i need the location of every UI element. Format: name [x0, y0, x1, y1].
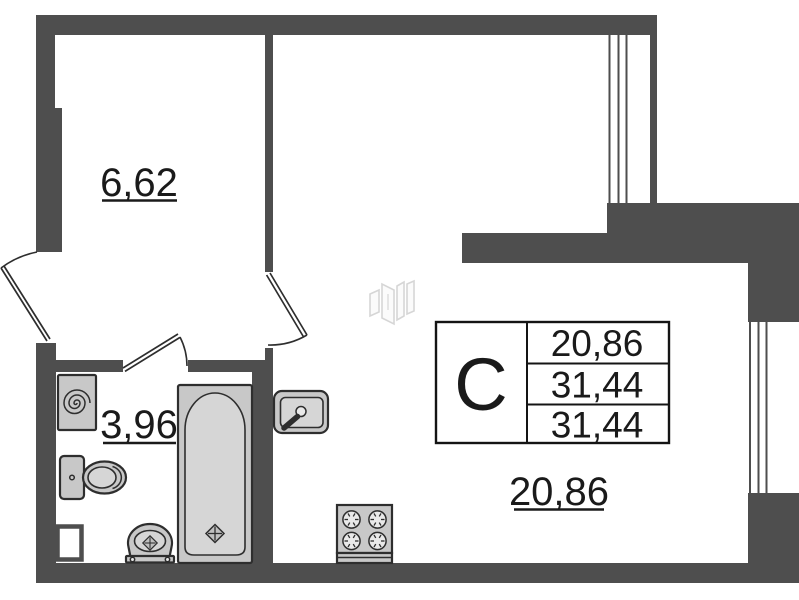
stamp-value-row1: 20,86 [551, 323, 644, 364]
vent-shaft [58, 527, 82, 560]
stove-icon [337, 505, 392, 563]
wall-mid-vertical [265, 35, 273, 272]
wall-bath-top-left [36, 360, 123, 372]
door-living-icon [267, 273, 307, 345]
stamp-value-row2: 31,44 [551, 365, 644, 406]
washing-machine-icon [58, 375, 96, 430]
wall-left-lower [36, 108, 62, 252]
room-label-living: 20,86 [509, 470, 609, 514]
bathtub-icon [178, 385, 252, 563]
floor-plan: 6,62 3,96 20,86 С 20,86 31,44 31,44 [0, 0, 799, 600]
wall-right-upper [748, 263, 799, 322]
wall-nook-partition [462, 233, 607, 263]
watermark-logo-icon [370, 281, 414, 324]
wall-bath-right [252, 360, 273, 563]
wall-stub-living-door [265, 348, 273, 372]
burner-icon [343, 532, 360, 549]
window-top-icon [610, 35, 658, 203]
walls [36, 15, 799, 583]
wall-top [36, 15, 657, 35]
room-label-bathroom: 3,96 [100, 403, 178, 447]
toilet-icon [60, 456, 126, 499]
room-label-hallway: 6,62 [100, 161, 178, 205]
floor-plan-canvas: 6,62 3,96 20,86 С 20,86 31,44 31,44 [0, 0, 799, 600]
wall-bath-left [36, 343, 56, 563]
stamp-table: С 20,86 31,44 31,44 [436, 322, 669, 446]
wall-bottom [36, 563, 799, 583]
burner-icon [369, 511, 386, 528]
stamp-type-letter: С [454, 343, 507, 426]
window-right-icon [750, 322, 767, 493]
door-bathroom-icon [123, 334, 187, 371]
kitchen-sink-icon [274, 391, 328, 433]
wall-left-upper [36, 15, 55, 108]
wall-topright-block [607, 203, 799, 263]
wash-basin-icon [126, 524, 174, 563]
burner-icon [343, 511, 360, 528]
burner-icon [369, 532, 386, 549]
door-entrance-icon [1, 252, 50, 341]
stamp-value-row3: 31,44 [551, 405, 644, 446]
